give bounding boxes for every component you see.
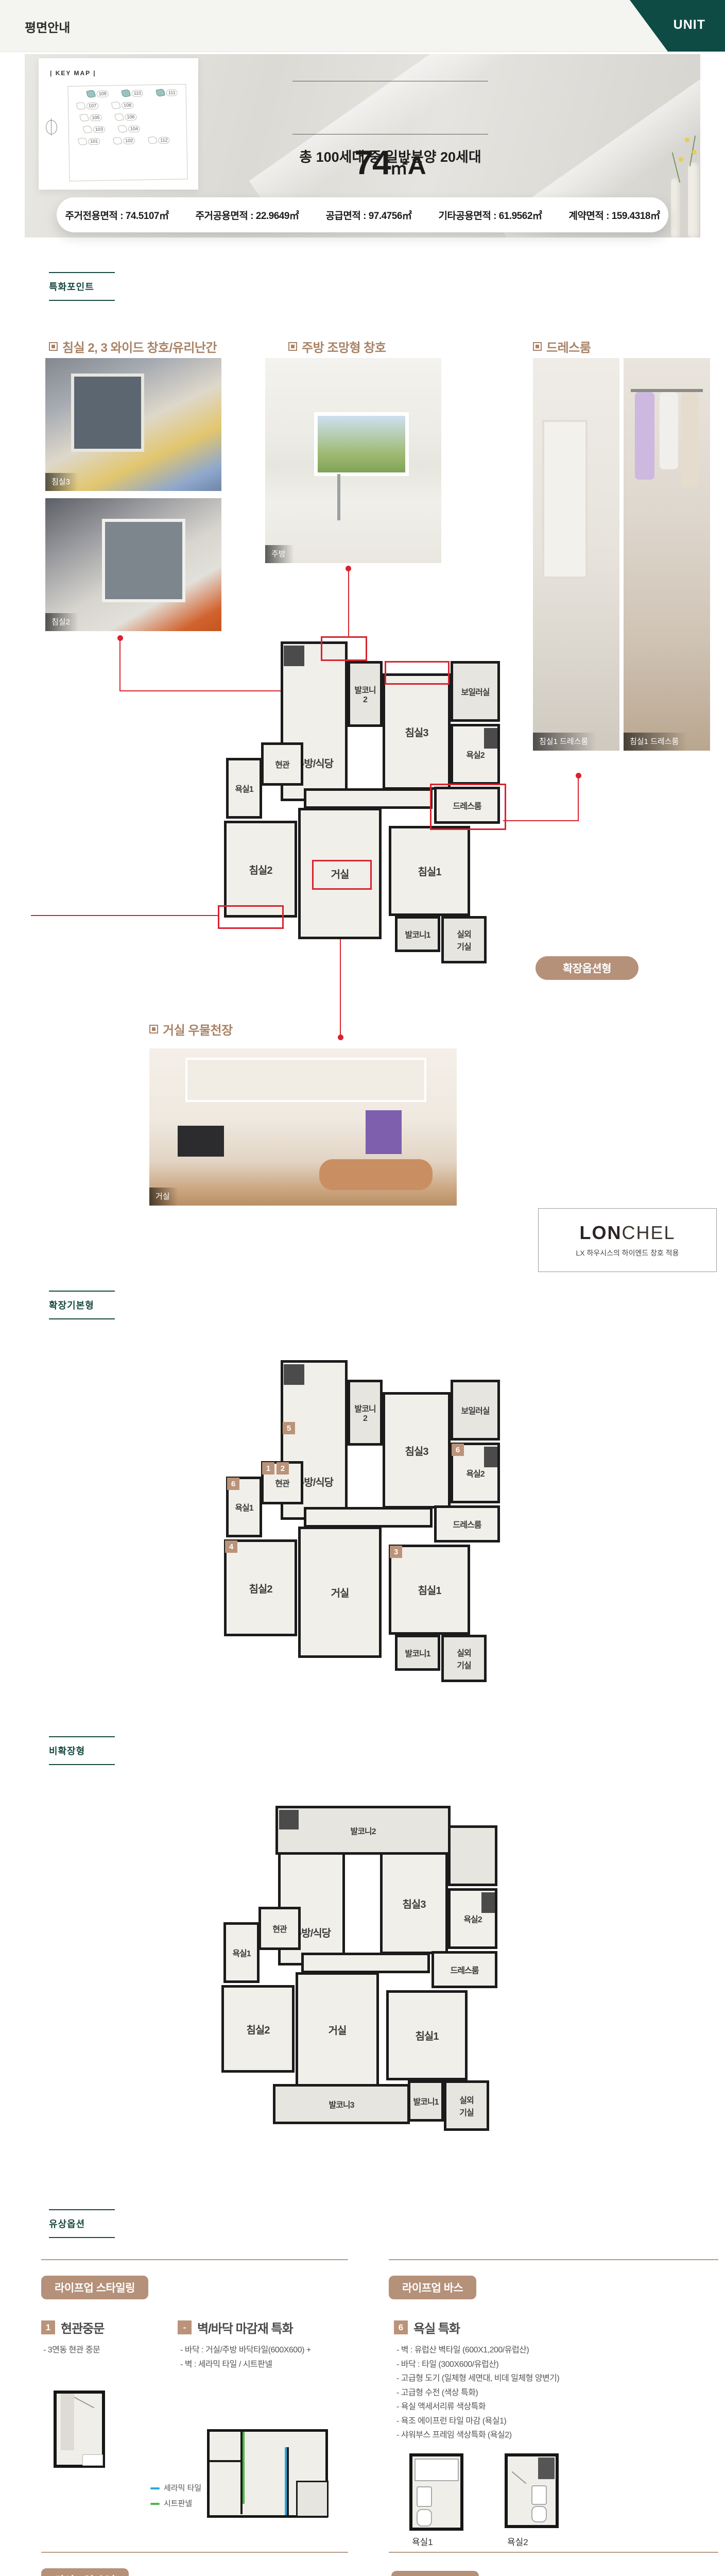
- room-balcony2: 발코니2: [275, 1806, 451, 1855]
- option-number-badge: -: [178, 2320, 192, 2334]
- room-balcony1: 발코니1: [395, 916, 440, 952]
- lonchel-logo: LONCHEL: [539, 1222, 716, 1244]
- option-number-badge: 6: [394, 2320, 408, 2334]
- key-map-label: | KEY MAP |: [50, 70, 96, 77]
- photo-bedroom3: 침실3: [45, 358, 221, 491]
- room-boiler: [448, 1825, 497, 1886]
- room-dressroom: 드레스룸: [434, 1505, 500, 1543]
- photo-caption: 침실1 드레스룸: [624, 733, 687, 751]
- room-outdoor-unit: 실외 기실: [441, 916, 487, 963]
- key-map-unit: 101: [78, 138, 100, 145]
- section-title-expanded-basic: 확장기본형: [49, 1291, 115, 1319]
- room-hall: [304, 1507, 433, 1528]
- expand-option-badge: 확장옵션형: [536, 956, 638, 980]
- connector-line: [119, 640, 120, 691]
- area-item: 주거전용면적 : 74.5107㎡: [65, 208, 169, 222]
- building-icon: [79, 113, 89, 122]
- option-item-entry-door: 1 현관중문: [41, 2318, 104, 2336]
- shaft-block: [484, 728, 497, 749]
- bathtub: [415, 2459, 459, 2481]
- compass-icon: [46, 120, 57, 134]
- shaft-block: [484, 1447, 497, 1467]
- entry-door-diagram: [54, 2391, 105, 2468]
- tv-decoration: [178, 1126, 224, 1157]
- key-map-unit: 102: [113, 137, 135, 145]
- floor-plan-non-expanded: 발코니2 주방/식당 침실3 욕실2 드레스룸 현관 욕실1 침실2 거실 침실…: [201, 1806, 510, 2146]
- option-divider: [389, 2259, 718, 2260]
- area-item: 기타공용면적 : 61.9562㎡: [438, 208, 542, 222]
- bathroom1-diagram: [409, 2453, 463, 2531]
- room-bedroom2: 침실2: [224, 821, 297, 918]
- photo-caption: 침실3: [45, 473, 78, 491]
- photo-kitchen: 주방: [265, 358, 441, 563]
- area-item: 공급면적 : 97.4756㎡: [325, 208, 411, 222]
- option-divider: [41, 2552, 348, 2553]
- kitchen-window-decoration: [314, 412, 409, 476]
- toilet: [531, 2506, 547, 2522]
- room-balcony1: 발코니1: [408, 2080, 444, 2122]
- room-dressroom: 드레스룸: [431, 1951, 497, 1988]
- wall-line: [210, 2460, 240, 2462]
- room-outdoor-unit: 실외 기실: [444, 2080, 489, 2131]
- photo-dressroom-1: 침실1 드레스룸: [533, 358, 619, 751]
- annex-room: [296, 2481, 329, 2517]
- shaft-block: [538, 2458, 555, 2479]
- option-item-wall-floor-finish: - 벽/바닥 마감재 특화: [178, 2318, 293, 2336]
- vase-decoration: [688, 162, 699, 238]
- room-entry: 현관: [261, 742, 303, 786]
- photo-caption: 침실2: [45, 613, 78, 631]
- building-icon: [113, 137, 122, 145]
- option-number-6: 6: [452, 1444, 464, 1456]
- window-decoration: [71, 374, 144, 452]
- photo-bedroom2: 침실2: [45, 498, 221, 631]
- option-number-4: 4: [225, 1540, 237, 1553]
- finish-mini-plan: [207, 2429, 328, 2518]
- key-map-unit: 108: [112, 101, 133, 109]
- option-number-badge: 1: [41, 2320, 55, 2334]
- vase-decoration: [671, 178, 680, 238]
- room-balcony2: 발코니 2: [348, 1380, 383, 1446]
- shaft-block: [481, 1892, 495, 1913]
- option-divider: [41, 2259, 348, 2260]
- room-outdoor-unit: 실외 기실: [441, 1635, 487, 1682]
- sink: [417, 2486, 432, 2507]
- legend-ceramic-tile: 세라믹 타일: [150, 2481, 201, 2496]
- toilet: [417, 2509, 432, 2527]
- key-map-unit: 109: [87, 90, 109, 98]
- door-slab: [61, 2394, 74, 2450]
- diagram-caption: 욕실1: [412, 2534, 433, 2551]
- building-icon: [148, 136, 157, 145]
- building-icon: [122, 89, 131, 98]
- room-living: 거실: [296, 1972, 379, 2087]
- room-bedroom3: 침실3: [380, 1852, 448, 1954]
- sofa-decoration: [319, 1159, 433, 1190]
- room-hall: [301, 1953, 430, 1973]
- room-bedroom1: 침실1: [389, 1545, 470, 1635]
- unit-ribbon-label: UNIT: [674, 18, 705, 32]
- square-bullet-icon: [288, 342, 297, 351]
- photo-dressroom-2: 침실1 드레스룸: [624, 358, 710, 751]
- key-map-card: | KEY MAP | 109 110 111 107 108 105 106 …: [39, 58, 198, 190]
- feature-heading-living-ceiling: 거실 우물천장: [149, 1020, 233, 1038]
- hanging-clothes-decoration: [681, 392, 699, 487]
- blue-dash-icon: [150, 2487, 160, 2489]
- legend-sheet-panel: 시트판넬: [150, 2496, 201, 2512]
- green-dash-icon: [150, 2503, 160, 2505]
- page-title: 평면안내: [25, 18, 70, 36]
- building-icon: [76, 101, 85, 110]
- pill-lifeup-styling: 라이프업 스타일링: [41, 2276, 148, 2299]
- lonchel-subtitle: LX 하우시스의 하이엔드 창호 적용: [539, 1248, 716, 1258]
- room-bedroom2: 침실2: [221, 1985, 295, 2073]
- room-hall: [304, 788, 433, 809]
- key-map-unit: 105: [80, 114, 101, 122]
- bathroom2-diagram: [505, 2453, 559, 2528]
- door-swing: [74, 2397, 95, 2408]
- lonchel-brand-card: LONCHEL LX 하우시스의 하이엔드 창호 적용: [538, 1208, 717, 1272]
- artwork-decoration: [366, 1110, 402, 1154]
- square-bullet-icon: [49, 342, 58, 351]
- option-divider: [389, 2552, 718, 2553]
- flower-decoration: [685, 138, 689, 142]
- connector-line: [348, 571, 349, 637]
- option-number-1: 1: [262, 1462, 274, 1475]
- sheet-panel-accent: [243, 2432, 245, 2504]
- room-bedroom1: 침실1: [386, 1990, 468, 2080]
- room-bedroom3: 침실3: [383, 673, 451, 790]
- square-bullet-icon: [149, 1025, 158, 1033]
- key-map-unit: 111: [157, 89, 178, 96]
- photo-caption: 주방: [265, 545, 294, 563]
- floor-plan-expanded-basic: 주방/식당 발코니 2 침실3 보일러실 욕실2 드레스룸 현관 욕실1 침실2…: [203, 1360, 512, 1700]
- building-icon: [156, 88, 165, 97]
- option-number-5: 5: [283, 1422, 295, 1434]
- mirror-decoration: [542, 420, 588, 579]
- finish-legend: 세라믹 타일 시트판넬: [150, 2481, 201, 2512]
- building-icon: [86, 90, 95, 98]
- option-number-2: 2: [277, 1462, 289, 1475]
- wall-line: [287, 2447, 289, 2515]
- option-bullets: - 벽 : 유럽산 벽타일 (600X1,200/유럽산) - 바닥 : 타일 …: [396, 2343, 685, 2443]
- option-number-3: 3: [390, 1546, 402, 1558]
- building-icon: [78, 137, 87, 146]
- section-title-features: 특화포인트: [49, 272, 115, 301]
- highlight-window-bed3: [385, 661, 450, 685]
- supply-subtitle: 총 100세대 중 일반분양 20세대: [246, 146, 534, 166]
- room-bedroom2: 침실2: [224, 1539, 297, 1636]
- key-map-unit: 106: [115, 113, 136, 121]
- building-icon: [83, 125, 92, 134]
- photo-caption: 거실: [149, 1188, 178, 1206]
- shaft-block: [284, 646, 304, 666]
- key-map-unit: 103: [83, 126, 105, 133]
- key-map-unit: 104: [118, 125, 140, 133]
- room-boiler: 보일러실: [451, 661, 500, 722]
- building-icon: [118, 125, 127, 133]
- connector-dot: [338, 1035, 343, 1040]
- connector-line: [578, 778, 579, 821]
- option-bullets: - 바닥 : 거실/주방 바닥타일(600X600) + - 벽 : 세라믹 타…: [180, 2343, 335, 2371]
- photo-living-room: 거실: [149, 1048, 457, 1206]
- hanging-clothes-decoration: [635, 392, 654, 480]
- page: 평면안내 UNIT | KEY MAP | 109 110 111 107: [0, 0, 725, 2576]
- ceramic-tile-accent: [285, 2447, 287, 2515]
- shaft-block: [284, 1364, 304, 1385]
- section-title-paid-options: 유상옵션: [49, 2209, 115, 2238]
- square-bullet-icon: [533, 342, 542, 351]
- area-item: 계약면적 : 159.4318㎡: [568, 208, 660, 222]
- sink: [531, 2485, 547, 2505]
- key-map-unit: 107: [77, 102, 98, 110]
- key-map-site-plan: 109 110 111 107 108 105 106 103 104 10: [67, 84, 187, 181]
- floor-plan-expanded-option: 주방/식당 발코니 2 침실3 보일러실 욕실2 드레스룸 현관 욕실1 침실2…: [203, 641, 512, 981]
- room-bedroom1: 침실1: [389, 826, 470, 916]
- title-rule-bottom: [292, 134, 488, 134]
- highlight-living: [312, 860, 372, 890]
- key-map-unit: 112: [148, 137, 170, 144]
- shaft-block: [279, 1810, 299, 1829]
- section-title-non-expanded: 비확장형: [49, 1736, 115, 1765]
- hanging-clothes-decoration: [660, 392, 678, 469]
- highlight-dressroom: [430, 784, 506, 830]
- area-item: 주거공용면적 : 22.9649㎡: [195, 208, 299, 222]
- area-info-bar: 주거전용면적 : 74.5107㎡ 주거공용면적 : 22.9649㎡ 공급면적…: [57, 197, 668, 232]
- room-bathroom1: 욕실1: [226, 758, 262, 819]
- title-rule-top: [292, 81, 488, 81]
- faucet-decoration: [337, 474, 340, 520]
- option-number-6: 6: [227, 1478, 239, 1490]
- key-map-unit: 110: [122, 89, 144, 97]
- option-bullets: - 3연동 현관 중문: [43, 2343, 100, 2358]
- pill-lifeup-kitchen: 라이프업 키친: [391, 2571, 479, 2576]
- ceiling-recess-decoration: [185, 1058, 426, 1102]
- flower-decoration: [679, 157, 683, 162]
- building-icon: [114, 113, 124, 122]
- room-entry: 현관: [258, 1907, 301, 1950]
- pill-lifeup-storage: 라이프업 수납: [41, 2568, 129, 2576]
- room-living: 거실: [298, 1527, 382, 1658]
- room-boiler: 보일러실: [451, 1380, 500, 1440]
- shoe-cabinet: [82, 2454, 103, 2466]
- diagram-caption: 욕실2: [507, 2534, 528, 2551]
- feature-heading-kitchen: 주방 조망형 창호: [288, 337, 386, 355]
- unit-ribbon: UNIT: [630, 0, 725, 52]
- flower-decoration: [692, 150, 697, 155]
- room-bedroom3: 침실3: [383, 1392, 451, 1509]
- highlight-window-bed2: [218, 905, 284, 929]
- pill-lifeup-bath: 라이프업 바스: [389, 2276, 476, 2299]
- highlight-window-top: [321, 636, 367, 661]
- room-balcony1: 발코니1: [395, 1635, 440, 1671]
- room-bathroom1: 욕실1: [223, 1922, 260, 1983]
- option-item-bath: 6 욕실 특화: [394, 2318, 460, 2336]
- window-decoration: [102, 519, 185, 602]
- connector-line: [503, 820, 579, 821]
- top-bar: 평면안내 UNIT: [0, 0, 725, 52]
- feature-heading-dressroom: 드레스룸: [533, 337, 591, 355]
- photo-caption: 침실1 드레스룸: [533, 733, 596, 751]
- room-balcony2: 발코니 2: [348, 661, 383, 727]
- room-balcony3: 발코니3: [273, 2084, 410, 2124]
- connector-line: [31, 915, 218, 916]
- feature-heading-bedroom: 침실 2, 3 와이드 창호/유리난간: [49, 337, 217, 355]
- building-icon: [111, 101, 120, 110]
- shower-door: [512, 2471, 527, 2484]
